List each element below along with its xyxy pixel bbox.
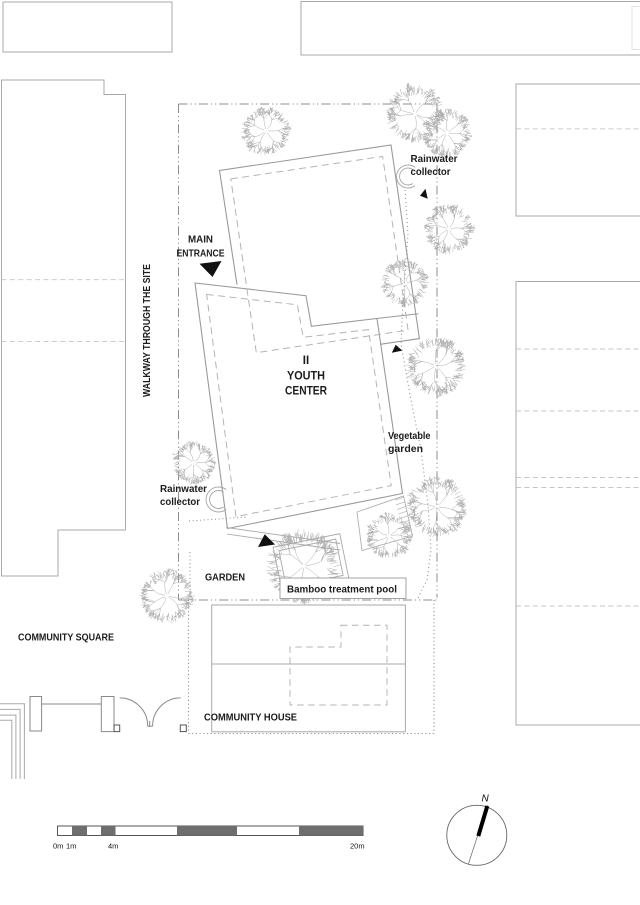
svg-text:1m: 1m (66, 842, 76, 851)
svg-text:COMMUNITY HOUSE: COMMUNITY HOUSE (204, 713, 297, 724)
svg-text:Rainwater: Rainwater (411, 153, 458, 165)
svg-text:CENTER: CENTER (285, 386, 328, 398)
svg-text:collector: collector (160, 496, 200, 508)
svg-text:garden: garden (388, 443, 423, 455)
svg-text:N: N (482, 794, 490, 805)
svg-text:WALKWAY THROUGH THE SITE: WALKWAY THROUGH THE SITE (141, 264, 153, 397)
svg-text:GARDEN: GARDEN (205, 573, 245, 584)
svg-text:II: II (303, 355, 309, 367)
svg-text:collector: collector (411, 166, 451, 178)
svg-text:YOUTH: YOUTH (287, 371, 325, 383)
svg-text:MAIN: MAIN (188, 234, 213, 246)
svg-text:20m: 20m (350, 842, 365, 851)
svg-text:Vegetable: Vegetable (388, 430, 431, 442)
svg-text:ENTRANCE: ENTRANCE (177, 248, 225, 260)
svg-text:Rainwater: Rainwater (160, 483, 207, 495)
svg-text:0m: 0m (53, 842, 63, 851)
svg-text:Bamboo treatment pool: Bamboo treatment pool (287, 584, 397, 596)
svg-text:4m: 4m (108, 842, 118, 851)
svg-text:COMMUNITY SQUARE: COMMUNITY SQUARE (18, 633, 114, 644)
